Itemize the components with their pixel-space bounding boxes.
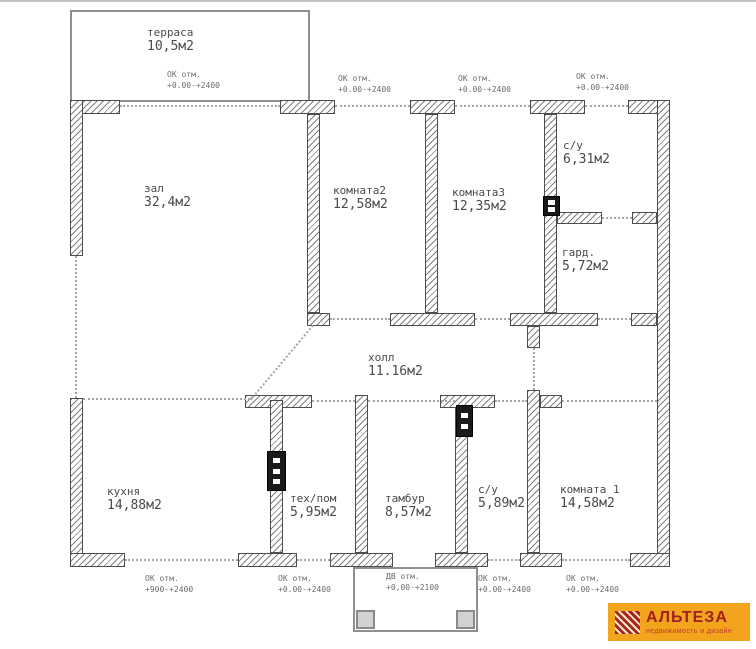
door-opening-line (598, 318, 631, 320)
door-opening-line (495, 400, 527, 402)
porch-column (356, 610, 375, 629)
wall-segment (307, 313, 330, 326)
wall-segment (530, 100, 585, 114)
room-area: 6,31м2 (563, 153, 610, 168)
open-boundary-line (562, 400, 657, 402)
window-dotted-line (335, 105, 410, 107)
room-area: 8,57м2 (385, 506, 432, 521)
wall-segment (632, 212, 657, 224)
room-area: 12,35м2 (452, 200, 507, 215)
window-elevation-note: ОК отм.+0.00-+2400 (278, 574, 331, 596)
window-elevation-note: ОК отм.+0.00-+2400 (167, 70, 220, 92)
room-area: 5,89м2 (478, 497, 525, 512)
window-dotted-line (297, 559, 330, 561)
window-dotted-line (75, 256, 77, 398)
room-name: тамбур (385, 493, 432, 506)
wall-segment (70, 100, 83, 256)
door-opening-line (602, 217, 632, 219)
room-name: комната3 (452, 187, 507, 200)
window-elevation-note: ОК отм.+0.00-+2400 (338, 74, 391, 96)
wall-segment (355, 395, 368, 553)
door-opening-line (533, 348, 535, 390)
open-boundary-line (250, 325, 314, 401)
window-dotted-line (455, 105, 530, 107)
room-name: с/у (478, 484, 525, 497)
door-opening-line (330, 318, 390, 320)
room-name: холл (368, 352, 423, 365)
electrical-panel-icon (543, 196, 560, 216)
room-label-room3: комната3 12,35м2 (452, 187, 507, 215)
room-name: терраса (147, 27, 194, 40)
electrical-panel-icon (456, 405, 473, 437)
wall-segment (630, 553, 670, 567)
electrical-panel-icon (267, 451, 286, 491)
wall-segment (425, 114, 438, 313)
open-boundary-line (83, 398, 250, 400)
room-label-room2: комната2 12,58м2 (333, 185, 388, 213)
wall-segment (631, 313, 657, 326)
room-name: зал (144, 183, 191, 196)
room-area: 12,58м2 (333, 198, 388, 213)
image-top-edge (0, 0, 756, 2)
room-label-kitchen: кухня 14,88м2 (107, 486, 162, 514)
window-dotted-line (120, 105, 280, 107)
wall-segment (435, 553, 488, 567)
alteza-logo-subtitle: недвижимость и дизайн (646, 628, 732, 635)
wall-segment (540, 395, 562, 408)
wall-segment (390, 313, 475, 326)
room-label-bathroom-bottom: с/у 5,89м2 (478, 484, 525, 512)
room-label-zal: зал 32,4м2 (144, 183, 191, 211)
wall-segment (330, 553, 393, 567)
window-dotted-line (125, 559, 238, 561)
door-opening-line (368, 400, 455, 402)
window-elevation-note: ОК отм.+0.00-+2400 (458, 74, 511, 96)
wall-segment (70, 398, 83, 567)
window-elevation-note: ОК отм.+0.00-+2400 (576, 72, 629, 94)
wall-segment (410, 100, 455, 114)
wall-segment (307, 114, 320, 313)
room-name: комната 1 (560, 484, 620, 497)
room-area: 5,95м2 (290, 506, 337, 521)
window-elevation-note: ОК отм.+0.00-+2400 (478, 574, 531, 596)
wall-segment (657, 100, 670, 567)
wall-segment (280, 100, 335, 114)
porch-column (456, 610, 475, 629)
room-name: комната2 (333, 185, 388, 198)
window-elevation-note: ОК отм.+900-+2400 (145, 574, 193, 596)
wall-segment (238, 553, 297, 567)
room-area: 14,58м2 (560, 497, 620, 512)
door-opening-line (312, 400, 355, 402)
window-elevation-note: ОК отм.+0.00-+2400 (566, 574, 619, 596)
window-dotted-line (585, 105, 628, 107)
room-area: 10,5м2 (147, 40, 194, 55)
room-area: 14,88м2 (107, 499, 162, 514)
window-dotted-line (488, 559, 520, 561)
room-area: 11.16м2 (368, 365, 423, 380)
door-elevation-note: ДВ отм.+0,00-+2100 (386, 572, 439, 594)
door-opening-line (475, 318, 510, 320)
room-label-terrace: терраса 10,5м2 (147, 27, 194, 55)
wall-segment (510, 313, 598, 326)
room-label-bathroom-top: с/у 6,31м2 (563, 140, 610, 168)
wall-segment (527, 390, 540, 553)
room-name: с/у (563, 140, 610, 153)
room-label-wardrobe: гард. 5,72м2 (562, 247, 609, 275)
window-dotted-line (562, 559, 630, 561)
room-label-tambour: тамбур 8,57м2 (385, 493, 432, 521)
room-name: тех/пом (290, 493, 337, 506)
alteza-logo-icon (615, 611, 640, 634)
alteza-logo: АЛЬТЕЗА недвижимость и дизайн (608, 603, 750, 641)
room-name: гард. (562, 247, 609, 260)
alteza-logo-title: АЛЬТЕЗА (646, 610, 732, 626)
room-label-tech: тех/пом 5,95м2 (290, 493, 337, 521)
room-label-room1: комната 1 14,58м2 (560, 484, 620, 512)
wall-segment (527, 326, 540, 348)
floor-plan-page: { "plan": { "rooms": [ {"name": "терраса… (0, 0, 756, 649)
wall-segment (70, 553, 125, 567)
room-area: 32,4м2 (144, 196, 191, 211)
wall-segment (557, 212, 602, 224)
room-label-hall: холл 11.16м2 (368, 352, 423, 380)
room-name: кухня (107, 486, 162, 499)
room-area: 5,72м2 (562, 260, 609, 275)
wall-segment (520, 553, 562, 567)
